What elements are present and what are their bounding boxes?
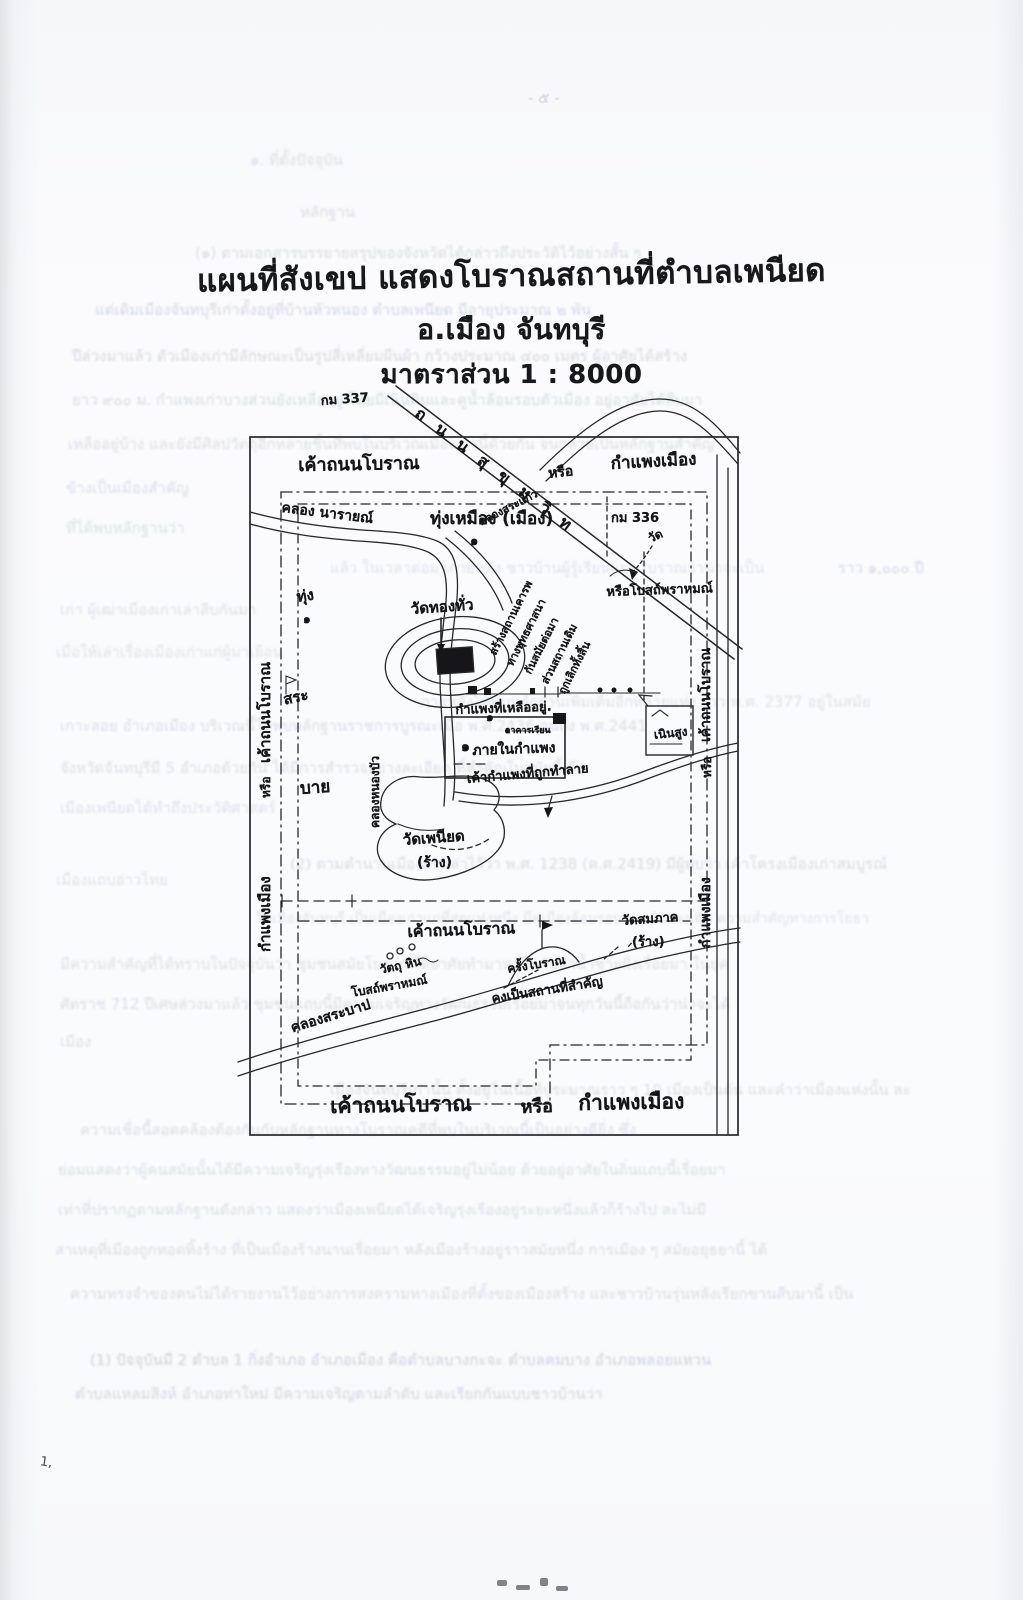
old-road-label-left-1: เค้าถนนโบราณ (253, 662, 277, 763)
scanned-document-page: ๑. ที่ตั้งปัจจุบันหลักฐาน(๑) ตามเอกสารบร… (0, 0, 1023, 1600)
old-road-label-bottom-2: กำแพงเมือง (578, 1085, 685, 1120)
right-edge-road (717, 455, 728, 1135)
old-road-label-top-right: กำแพงเมือง (610, 446, 697, 477)
old-road-label-bottom-or: หรือ (520, 1091, 553, 1121)
hand-drawn-map (0, 0, 1023, 1600)
old-road-label-right-1: เค้าถนนโบราณ (695, 648, 717, 742)
km-336-label: กม 336 (611, 507, 659, 528)
km-337-label: กม 337 (320, 387, 369, 411)
wat-phaniat-ruin-label: (ร้าง) (417, 852, 452, 874)
school-building-label: อาคารเรียน (505, 723, 551, 737)
wat-somphak-ruin-label: (ร้าง) (632, 931, 665, 952)
bai-label: บาย (299, 773, 331, 802)
noen-sung-label: เนินสูง (653, 722, 689, 744)
marker-one-thung: ๑ (303, 610, 311, 629)
khlong-nongbua-label: คลองหนองบัว (366, 756, 385, 828)
marker-one-wall: ๑ (461, 736, 470, 758)
wat-phaniat-label: วัดเพนียด (402, 824, 465, 852)
old-road-label-right-2: กำแพงเมือง (695, 877, 717, 948)
thung-label: ทุ่ง (295, 583, 315, 609)
wall-remaining-label: กำแพงที่เหลืออยู่. (455, 696, 552, 720)
old-road-label-right-or: หรือ (698, 756, 717, 778)
pen-mark: 1, (39, 1454, 53, 1471)
marker-one-field: ๑ (470, 530, 478, 551)
old-road-label-left-or: หรือ (257, 776, 276, 798)
old-road-label-top-left: เค้าถนนโบราณ (298, 448, 420, 479)
old-road-label-mid: เค้าถนนโบราณ (407, 916, 516, 945)
brahmin-shrine-label: หรือโบสถ์พราหมณ์ (606, 577, 713, 602)
old-road-label-bottom-1: เค้าถนนโบราณ (330, 1088, 472, 1123)
wat-thong-thua-label: วัดทองทั่ว (410, 593, 474, 621)
old-road-label-top-or: หรือ (547, 460, 574, 485)
old-road-label-left-2: กำแพงเมือง (253, 876, 277, 952)
sa-label: สระ (281, 683, 311, 712)
inside-wall-label: ภายในกำแพง (472, 737, 556, 762)
wat-somphak-label: วัดสมภาค (621, 906, 679, 931)
khlong-sabap (238, 928, 740, 1076)
